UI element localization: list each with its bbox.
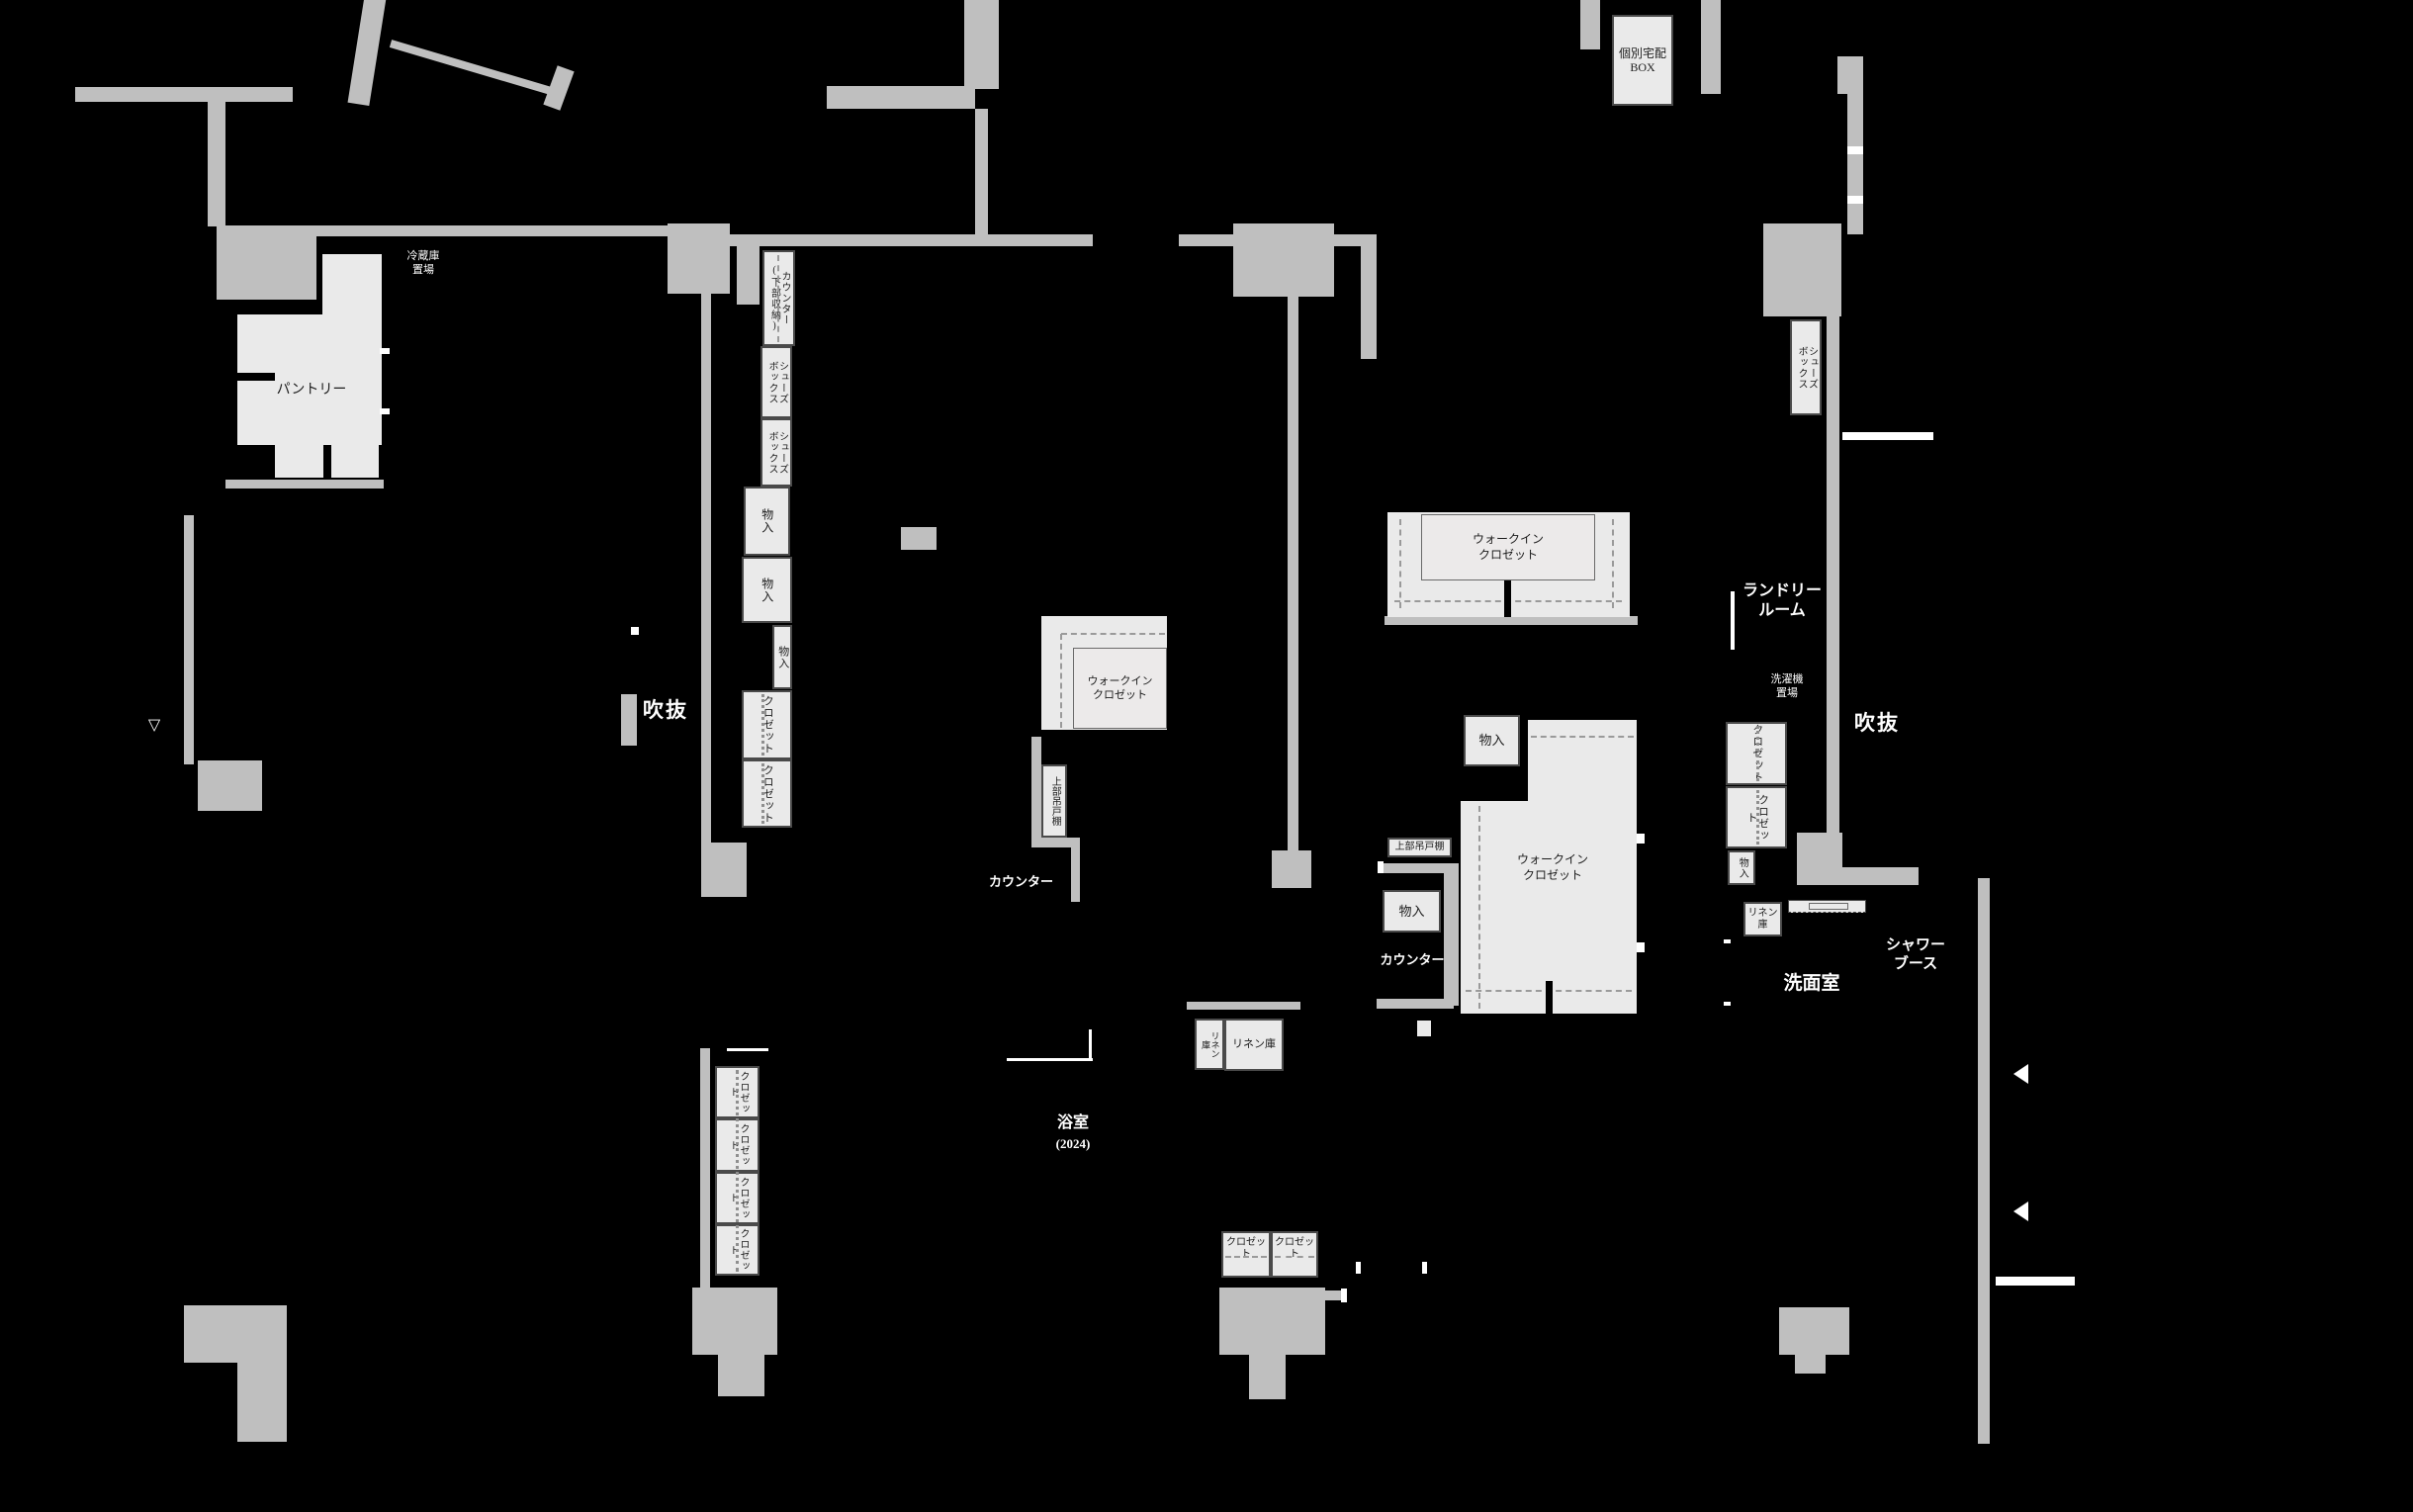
shoes-box-label: シューズ ボックス [766, 431, 787, 475]
door-jamb-mark [380, 348, 390, 354]
storage-label: 物入 [1398, 904, 1424, 920]
counter-label: カウンター [1378, 952, 1447, 968]
storage-label: 物入 [1478, 733, 1504, 749]
void-label: 吹抜 [1847, 710, 1907, 736]
wall-segment [1377, 999, 1454, 1009]
linen-storage-label: リネン 庫 [1748, 908, 1778, 932]
linen-storage-box: リネン庫 [1224, 1019, 1284, 1071]
storage-box: 物入 [1728, 850, 1755, 885]
closet-dash-line [1061, 633, 1165, 635]
walk-in-closet-label: ウォークイン クロゼット [1088, 674, 1153, 703]
closet-dotted-line [761, 694, 764, 756]
counter-label: カウンター [984, 874, 1058, 890]
door-jamb-mark [1378, 861, 1384, 873]
pantry-room [322, 254, 382, 314]
wall-segment [1763, 223, 1841, 316]
laundry-room-label: ランドリー ルーム [1733, 581, 1832, 621]
storage-label: 物入 [1737, 857, 1747, 879]
void-label: 吹抜 [638, 697, 693, 723]
delivery-box: 個別宅配 BOX [1612, 15, 1673, 106]
wall-segment [701, 242, 711, 850]
wall-segment [901, 527, 937, 550]
wall-segment-diagonal [348, 0, 387, 106]
wall-segment [964, 0, 999, 89]
shoes-box: シューズ ボックス [760, 346, 792, 418]
closet-box: クロゼット [1221, 1231, 1271, 1278]
wall-segment [1219, 1288, 1325, 1355]
wall-segment [1233, 223, 1334, 297]
vanity-counter [1788, 900, 1866, 913]
door-jamb-mark [380, 408, 390, 414]
closet-dash-line [1060, 634, 1062, 728]
wall-segment [230, 225, 671, 236]
wall-segment [621, 694, 637, 746]
wall-segment [1847, 94, 1863, 234]
storage-box: 物入 [772, 625, 792, 689]
washroom-label: 洗面室 [1775, 972, 1848, 996]
shoes-box-label: シューズ ボックス [1796, 346, 1817, 390]
door-swing-icon [2013, 1201, 2028, 1221]
wall-segment [1071, 847, 1080, 902]
fixture-box [1417, 1021, 1431, 1036]
wall-divider [1504, 580, 1511, 617]
opening-mark [1847, 146, 1863, 154]
closet-dash-line [1225, 1256, 1267, 1258]
walk-in-closet-label: ウォークイン クロゼット [1493, 852, 1612, 883]
wall-segment [1701, 0, 1721, 94]
storage-box: 物入 [1383, 890, 1441, 933]
wall-segment [184, 1305, 287, 1363]
closet-box: クロゼット [742, 759, 792, 828]
storage-box: 物入 [744, 487, 790, 556]
wall-segment-diagonal [390, 40, 563, 98]
wall-line [727, 1048, 768, 1051]
upper-cabinet-box: 上部吊戸棚 [1387, 838, 1452, 857]
wall-divider [1546, 981, 1553, 1014]
wall-segment [1385, 616, 1638, 625]
closet-dash-line [1612, 519, 1614, 608]
wall-segment [1837, 56, 1863, 94]
wall-segment [975, 109, 988, 234]
wall-segment [1978, 878, 1990, 1444]
shoes-box-label: シューズ ボックス [766, 361, 787, 404]
wall-segment [1580, 0, 1600, 49]
closet-dotted-line [736, 1070, 739, 1272]
opening-mark [1847, 196, 1863, 204]
linen-storage-box: リネン 庫 [1195, 1019, 1224, 1070]
storage-box: 物入 [1464, 715, 1520, 766]
pantry-label: パントリー [249, 379, 374, 399]
upper-cabinet-label: 上部吊戸棚 [1049, 776, 1060, 826]
bathroom-label: 浴室 [1043, 1113, 1103, 1133]
wall-segment [1842, 867, 1919, 885]
shoes-box: シューズ ボックス [760, 418, 792, 487]
wall-segment [217, 225, 316, 300]
closet-box: クロゼット [1271, 1231, 1318, 1278]
wall-segment [1249, 1355, 1286, 1399]
wall-segment [1031, 737, 1041, 847]
wall-segment [700, 1048, 710, 1288]
wall-segment [718, 1355, 764, 1396]
walk-in-closet-box: ウォークイン クロゼット [1421, 514, 1595, 580]
upper-cabinet-label: 上部吊戸棚 [1395, 842, 1445, 853]
wall-segment [237, 1363, 287, 1442]
door-jamb-mark [1637, 942, 1645, 952]
opening-mark [1341, 1289, 1347, 1302]
bathroom-year-label: (2024) [1038, 1136, 1108, 1152]
linen-storage-label: リネン 庫 [1201, 1031, 1219, 1058]
storage-box: 物入 [742, 557, 792, 623]
shelf-dash-line [777, 255, 779, 342]
door-jamb-mark [1637, 834, 1645, 844]
upper-cabinet-box: 上部吊戸棚 [1041, 764, 1067, 838]
walk-in-closet-box: ウォークイン クロゼット [1073, 648, 1167, 729]
refrigerator-space-label: 冷蔵庫 置場 [396, 250, 451, 278]
opening-mark [1842, 432, 1933, 440]
walk-in-closet-label: ウォークイン クロゼット [1473, 532, 1544, 563]
storage-label: 物入 [760, 578, 773, 603]
wall-line [1007, 1058, 1093, 1061]
wall-segment [184, 515, 194, 764]
wall-segment [668, 223, 730, 294]
opening-mark [1724, 939, 1731, 943]
wall-segment [1322, 1290, 1343, 1300]
wall-segment [1361, 234, 1377, 359]
wall-segment [1779, 1307, 1849, 1355]
wall-segment [1187, 1002, 1300, 1010]
wall-segment [1288, 297, 1298, 850]
wall-line [1089, 1029, 1092, 1061]
linen-storage-box: リネン 庫 [1743, 902, 1782, 936]
wall-segment [198, 760, 262, 811]
closet-dash-line [1399, 519, 1401, 608]
sink-outline [1809, 903, 1848, 910]
wall-segment [75, 87, 293, 102]
opening-mark [1356, 1262, 1361, 1274]
door-swing-icon [2013, 1064, 2028, 1084]
wall-segment [1827, 316, 1839, 834]
closet-dash-line [1531, 736, 1634, 738]
wall-segment [1179, 234, 1233, 246]
storage-label: 物入 [760, 508, 773, 534]
opening-mark [1724, 1002, 1731, 1006]
closet-dotted-line [1756, 726, 1759, 781]
wall-segment [1444, 863, 1459, 1006]
shower-booth-label: シャワー ブース [1877, 936, 1954, 974]
washer-space-label: 洗濯機 置場 [1758, 673, 1816, 701]
opening-mark [1422, 1262, 1427, 1274]
wall-segment [827, 86, 975, 109]
wall-segment [208, 102, 225, 226]
linen-storage-label: リネン庫 [1232, 1038, 1276, 1051]
wall-segment [692, 1288, 777, 1355]
wall-segment [1797, 833, 1842, 885]
opening-mark [1996, 1277, 2075, 1286]
shoes-box: シューズ ボックス [1790, 319, 1822, 415]
floor-plan: パントリー カウンター (下部収納) シューズ ボックス シューズ ボックス 物… [0, 0, 2413, 1512]
wall-segment [225, 480, 384, 489]
walk-in-closet-area [1528, 720, 1637, 802]
closet-dotted-line [1756, 790, 1759, 845]
delivery-box-label: 個別宅配 BOX [1619, 46, 1666, 75]
wall-segment [737, 237, 760, 305]
storage-label: 物入 [776, 646, 788, 669]
wall-divider [323, 445, 331, 478]
wall-segment [701, 843, 747, 897]
wall-segment [1795, 1355, 1826, 1374]
closet-dash-line [1275, 1256, 1314, 1258]
wall-segment [1041, 838, 1080, 847]
closet-dash-line [1478, 806, 1480, 1009]
wall-segment [1272, 850, 1311, 888]
closet-box: クロゼット [742, 690, 792, 759]
closet-dotted-line [761, 763, 764, 824]
triangle-marker: ▽ [142, 716, 166, 736]
opening-mark [631, 627, 639, 635]
wall-segment [727, 234, 1093, 246]
